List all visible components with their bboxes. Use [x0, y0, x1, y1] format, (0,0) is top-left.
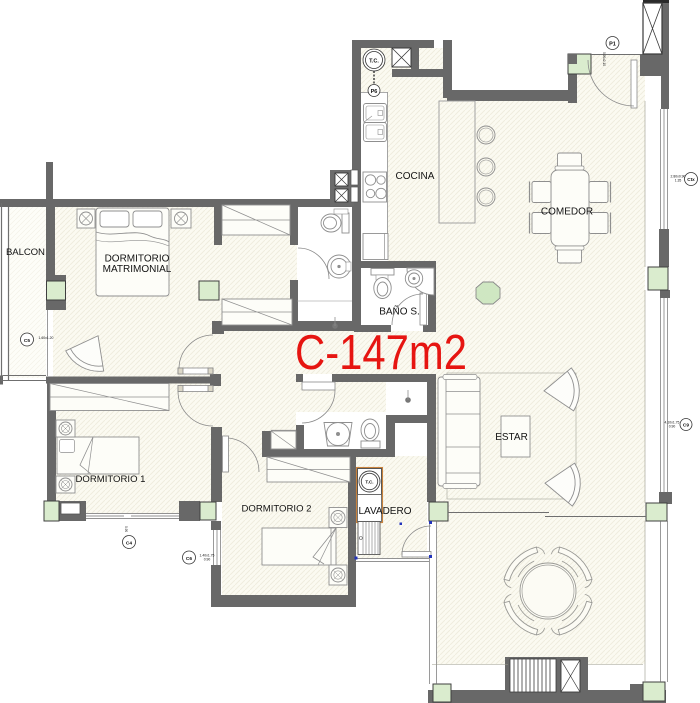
svg-text:DORMITORIO 1: DORMITORIO 1: [76, 474, 146, 485]
svg-text:C5: C5: [24, 338, 30, 344]
svg-text:COMEDOR: COMEDOR: [541, 207, 593, 218]
svg-text:LAVADERO: LAVADERO: [359, 506, 412, 517]
svg-text:T.C.: T.C.: [365, 480, 373, 485]
svg-text:BALCON: BALCON: [6, 247, 45, 258]
svg-text:0.90: 0.90: [204, 558, 211, 562]
svg-text:0.90: 0.90: [669, 425, 676, 429]
svg-text:C-147m2: C-147m2: [295, 326, 467, 380]
svg-text:C4: C4: [126, 540, 132, 546]
svg-text:P6: P6: [371, 89, 378, 95]
svg-text:ESTAR: ESTAR: [495, 432, 528, 443]
svg-text:DORMITORIO 2: DORMITORIO 2: [242, 504, 312, 515]
svg-text:Ctx: Ctx: [687, 177, 695, 182]
svg-text:0.90: 0.90: [124, 526, 128, 532]
svg-text:0.90x2.10: 0.90x2.10: [602, 52, 606, 66]
svg-text:T.C.: T.C.: [369, 59, 379, 65]
svg-text:COCINA: COCINA: [396, 171, 435, 182]
svg-text:C9: C9: [683, 423, 689, 429]
svg-text:BAÑO S.: BAÑO S.: [379, 305, 420, 318]
svg-text:P1: P1: [609, 41, 616, 47]
svg-text:MATRIMONIAL: MATRIMONIAL: [103, 264, 172, 275]
svg-text:C6: C6: [186, 556, 192, 562]
svg-text:1.35: 1.35: [675, 179, 682, 183]
svg-text:1.60x1.20: 1.60x1.20: [39, 336, 54, 340]
svg-text:DORMITORIO: DORMITORIO: [105, 254, 170, 265]
